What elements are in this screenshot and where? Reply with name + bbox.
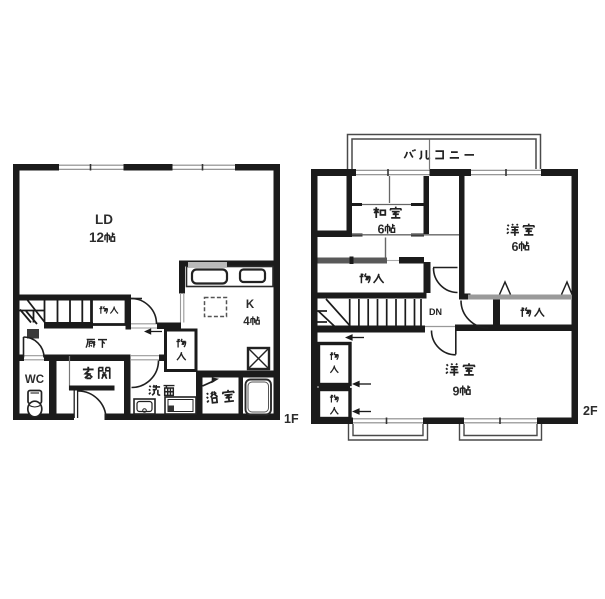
svg-text:WC: WC xyxy=(25,374,44,386)
svg-text:12: 12 xyxy=(89,230,104,245)
svg-text:2F: 2F xyxy=(583,404,598,418)
svg-text:LD: LD xyxy=(95,212,113,227)
svg-text:9: 9 xyxy=(453,385,460,399)
svg-text:DN: DN xyxy=(429,307,442,317)
svg-text:K: K xyxy=(246,299,255,311)
svg-text:1F: 1F xyxy=(284,412,299,426)
svg-text:6: 6 xyxy=(512,240,519,254)
svg-text:4: 4 xyxy=(243,316,250,328)
